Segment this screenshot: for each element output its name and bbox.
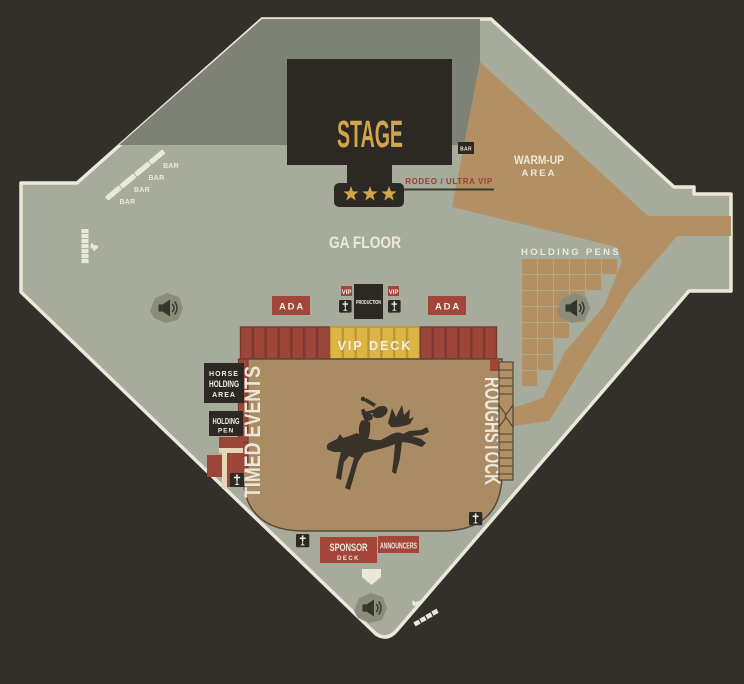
restroom-stall — [82, 259, 89, 263]
horse-holding-label-line2: HOLDING — [209, 379, 239, 389]
east-seat-block — [490, 359, 499, 371]
pen-cell — [554, 259, 569, 274]
pen-cell — [538, 291, 553, 306]
seat-block — [420, 327, 432, 359]
pen-cell — [538, 275, 553, 290]
first-aid-icon — [469, 512, 482, 525]
vip-tag-right-label: VIP — [389, 290, 399, 296]
pen-cell — [522, 275, 537, 290]
bar-label: BAR — [119, 199, 135, 206]
pen-cell — [538, 339, 553, 354]
warmup-area-label-line2: AREA — [522, 168, 557, 179]
pen-cell — [522, 291, 537, 306]
bar-label: BAR — [134, 187, 150, 194]
horse-holding-label-line1: HORSE — [209, 371, 239, 378]
pen-cell — [570, 275, 585, 290]
stage-label: STAGE — [337, 114, 403, 156]
seat-block — [241, 327, 253, 359]
seat-block — [433, 327, 445, 359]
seat-block — [292, 327, 304, 359]
pen-cell — [522, 307, 537, 322]
vip-tag-left-label: VIP — [342, 290, 352, 296]
stage-bar-tag-label: BAR — [460, 147, 472, 153]
pen-cell — [538, 307, 553, 322]
seat-block — [472, 327, 484, 359]
holding-pen-label-line2: PEN — [218, 428, 234, 435]
rodeo-ultra-vip-label: RODEO / ULTRA VIP — [405, 177, 493, 186]
sponsor-deck-label-line2: DECK — [337, 556, 360, 562]
pen-cell — [586, 259, 601, 274]
ada-left-label: ADA — [279, 302, 305, 313]
seat-block — [446, 327, 458, 359]
pen-cell — [538, 259, 553, 274]
ada-right-label: ADA — [435, 302, 461, 313]
pen-cell — [522, 371, 537, 386]
restroom-stall — [82, 254, 89, 258]
bar-label: BAR — [148, 175, 164, 182]
pen-cell — [538, 323, 553, 338]
restroom-row-west — [82, 229, 89, 263]
seat-block — [279, 327, 291, 359]
ga-floor-label: GA FLOOR — [329, 233, 401, 252]
pen-cell — [538, 355, 553, 370]
pen-cell — [586, 275, 601, 290]
venue-map-canvas: STAGE BAR RODEO / ULTRA VIP GA FLOOR WAR… — [0, 0, 744, 684]
bucking-chutes — [499, 362, 513, 480]
first-aid-icon — [339, 300, 352, 313]
pen-cell — [522, 323, 537, 338]
first-aid-icon — [388, 300, 401, 313]
venue-map: STAGE BAR RODEO / ULTRA VIP GA FLOOR WAR… — [0, 0, 744, 684]
restroom-stall — [82, 249, 89, 253]
seat-block — [266, 327, 278, 359]
seat-block — [318, 327, 330, 359]
pen-cell — [570, 259, 585, 274]
restroom-stall — [82, 234, 89, 238]
pen-cell — [522, 339, 537, 354]
sponsor-deck-label-line1: SPONSOR — [330, 542, 368, 554]
restroom-stall — [82, 239, 89, 243]
pen-cell — [602, 259, 617, 274]
holding-pen-label-line1: HOLDING — [213, 416, 240, 426]
seat-block — [253, 327, 265, 359]
vip-deck-label: VIP DECK — [338, 339, 413, 353]
production-label: PRODUCTION — [356, 300, 381, 306]
pen-cell — [522, 355, 537, 370]
horse-holding-label-line3: AREA — [212, 392, 236, 399]
bar-label: BAR — [163, 163, 179, 170]
holding-pens-label: HOLDING PENS — [521, 247, 621, 258]
seat-block — [459, 327, 471, 359]
first-aid-icon — [296, 534, 309, 547]
warmup-area-label-line1: WARM-UP — [514, 153, 564, 167]
announcers-label: ANNOUNCERS — [380, 541, 417, 551]
restroom-stall — [82, 244, 89, 248]
seat-block — [305, 327, 317, 359]
restroom-stall — [82, 229, 89, 233]
first-aid-icon — [230, 473, 244, 487]
pen-cell — [522, 259, 537, 274]
pen-cell — [554, 323, 569, 338]
pen-cell — [554, 275, 569, 290]
seat-block — [485, 327, 497, 359]
